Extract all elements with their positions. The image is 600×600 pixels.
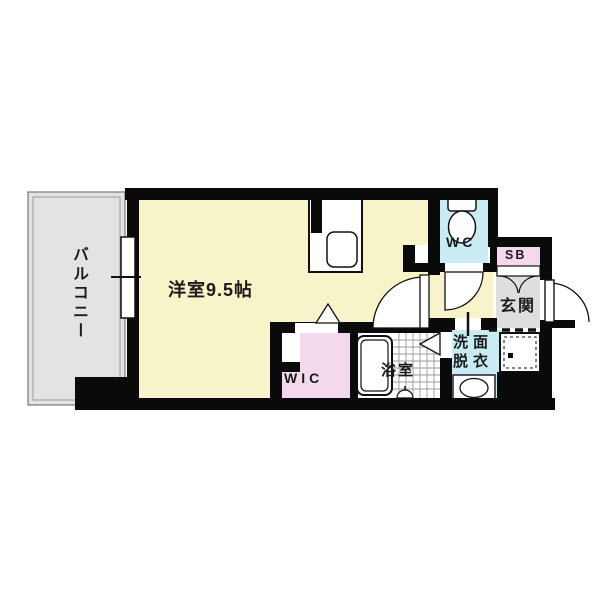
shoe-cabinet — [497, 266, 540, 276]
wall-bottom — [75, 398, 555, 410]
main-room-door-leaf — [420, 275, 429, 328]
floor-plan: バルコニー 洋室9.5帖 WC SB 玄関 WIC 浴室 洗面脱衣 — [0, 0, 600, 600]
balcony-label: バルコニー — [66, 246, 90, 341]
entrance-door-leaf — [545, 280, 554, 322]
main-room-label: 洋室9.5帖 — [168, 276, 253, 302]
wall-bottom-right-fill — [497, 372, 552, 400]
wic-niche — [282, 333, 300, 362]
washroom-label: 洗面脱衣 — [453, 333, 493, 371]
wc-door-opening — [445, 263, 483, 272]
wall-right-above-door — [540, 247, 552, 280]
entrance-step-line — [493, 272, 496, 318]
washing-machine-drain — [508, 353, 513, 358]
washroom-label-line1: 洗面 — [453, 334, 493, 351]
wall-wc-left — [428, 190, 440, 275]
kitchen-sink — [327, 232, 357, 267]
wic-door-opening — [295, 323, 338, 333]
wall-stub-horizontal — [403, 263, 440, 272]
main-door-pocket — [415, 245, 428, 263]
bath-door-opening — [440, 332, 452, 358]
wall-sb-top — [488, 237, 552, 247]
wall-wc-bottom-right — [483, 263, 497, 272]
wall-wic-left — [270, 322, 282, 398]
wic-label: WIC — [284, 370, 323, 386]
wall-hall-bottom-right — [481, 318, 497, 330]
entrance-label: 玄関 — [500, 292, 536, 316]
wall-top — [125, 188, 498, 200]
wc-label: WC — [446, 234, 475, 250]
shoe-box-label: SB — [505, 248, 526, 262]
washroom-label-line2: 脱衣 — [453, 353, 493, 370]
bathroom-label: 浴室 — [381, 359, 415, 380]
washing-machine-pan — [500, 333, 540, 372]
wall-wic-bath — [350, 333, 358, 398]
